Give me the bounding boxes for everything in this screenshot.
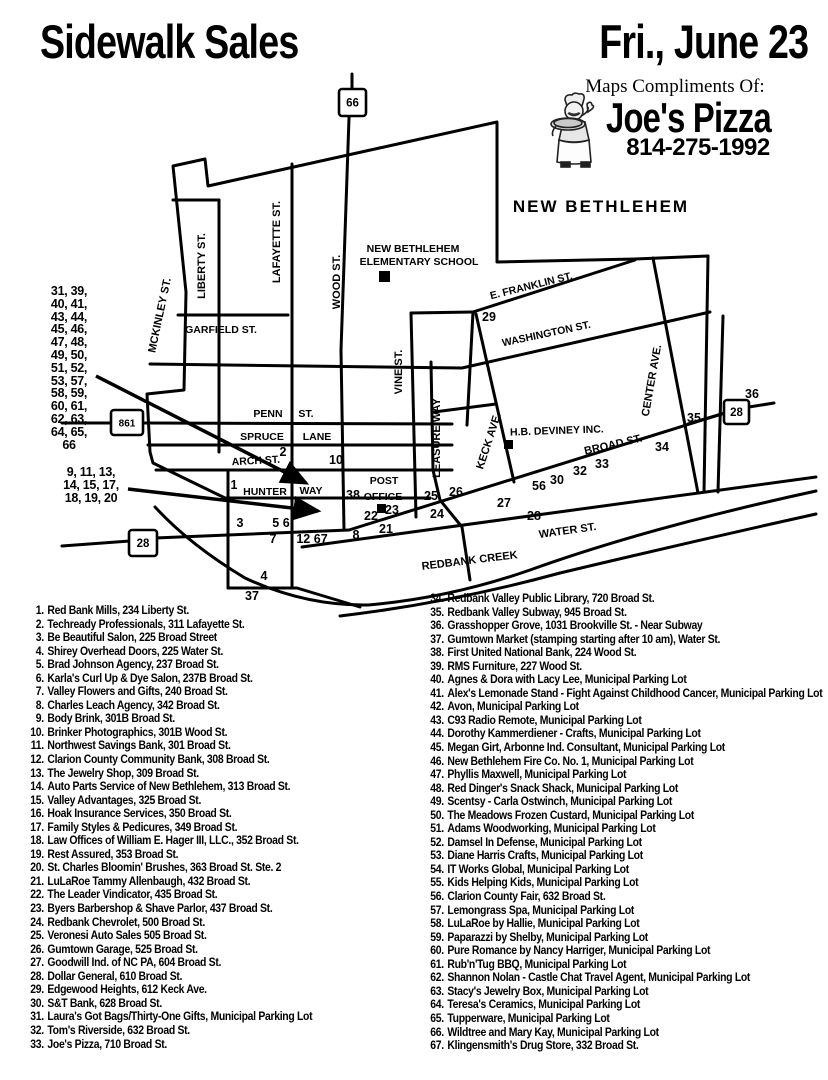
directory-item-text: Red Dinger's Snack Shack, Municipal Park… [447, 782, 678, 795]
directory-item-number: 3. [24, 631, 44, 645]
map-number-35: 35 [687, 411, 701, 425]
street-label: CENTER AVE. [640, 344, 664, 418]
directory-item: 27.Goodwill Ind. of NC PA, 604 Broad St. [24, 956, 388, 970]
directory-item-text: The Leader Vindicator, 435 Broad St. [47, 888, 217, 901]
map-number-21: 21 [379, 522, 393, 536]
directory-item: 61.Rub'n'Tug BBQ, Municipal Parking Lot [424, 958, 788, 972]
directory-item-text: Red Bank Mills, 234 Liberty St. [47, 604, 189, 617]
street-lines [62, 74, 816, 616]
street-label: ARCH ST. [231, 454, 280, 469]
directory-item: 8.Charles Leach Agency, 342 Broad St. [24, 699, 388, 713]
directory-item-number: 38. [424, 646, 444, 660]
directory-item: 30.S&T Bank, 628 Broad St. [24, 997, 388, 1011]
directory-item: 23.Byers Barbershop & Shave Parlor, 437 … [24, 902, 388, 916]
map-number-38: 38 [346, 488, 360, 502]
map-number-1: 1 [231, 478, 238, 492]
directory-item-text: Tom's Riverside, 632 Broad St. [47, 1024, 189, 1037]
map-number-25: 25 [424, 489, 438, 503]
directory-item: 29.Edgewood Heights, 612 Keck Ave. [24, 983, 388, 997]
directory-item-text: Charles Leach Agency, 342 Broad St. [47, 699, 219, 712]
directory-item-text: Rest Assured, 353 Broad St. [47, 848, 178, 861]
directory-item-number: 46. [424, 755, 444, 769]
directory-item-text: Dorothy Kammerdiener - Crafts, Municipal… [447, 727, 700, 740]
directory-item: 41.Alex's Lemonade Stand - Fight Against… [424, 687, 788, 701]
directory-item-number: 5. [24, 658, 44, 672]
parking-lot-number-cluster: 31, 39,40, 41,43, 44,45, 46,47, 48,49, 5… [36, 285, 102, 451]
directory-item-number: 17. [24, 821, 44, 835]
directory-item: 37.Gumtown Market (stamping starting aft… [424, 633, 788, 647]
directory-item-number: 35. [424, 606, 444, 620]
map-number-8: 8 [353, 528, 360, 542]
directory-item-text: Avon, Municipal Parking Lot [447, 700, 578, 713]
directory-item-number: 50. [424, 809, 444, 823]
directory-item: 35.Redbank Valley Subway, 945 Broad St. [424, 606, 788, 620]
directory-item-number: 6. [24, 672, 44, 686]
street-label: WASHINGTON ST. [501, 319, 592, 350]
directory-item-number: 1. [24, 604, 44, 618]
directory-item-number: 41. [424, 687, 444, 701]
directory-item-text: Valley Flowers and Gifts, 240 Broad St. [47, 685, 227, 698]
directory-item: 26.Gumtown Garage, 525 Broad St. [24, 943, 388, 957]
directory-item-number: 62. [424, 971, 444, 985]
directory-item: 31.Laura's Got Bags/Thirty-One Gifts, Mu… [24, 1010, 388, 1024]
directory-item-number: 40. [424, 673, 444, 687]
directory-item-number: 51. [424, 822, 444, 836]
directory-item: 53.Diane Harris Crafts, Municipal Parkin… [424, 849, 788, 863]
directory-item: 55.Kids Helping Kids, Municipal Parking … [424, 876, 788, 890]
directory-item: 58.LuLaRoe by Hallie, Municipal Parking … [424, 917, 788, 931]
cluster-line: 51, 52, [36, 362, 102, 375]
street-label: WATER ST. [538, 521, 597, 541]
map-number-26: 26 [449, 485, 463, 499]
right-boundary-1 [704, 256, 708, 492]
street-label: NEW BETHLEHEM [367, 243, 460, 255]
directory-item-text: Diane Harris Crafts, Municipal Parking L… [447, 849, 643, 862]
directory-item: 18.Law Offices of William E. Hager III, … [24, 834, 388, 848]
street-label: LEASURE WAY [431, 398, 443, 478]
map-number-28: 28 [527, 509, 541, 523]
directory-item-text: Gumtown Market (stamping starting after … [447, 633, 720, 646]
directory-item-number: 42. [424, 700, 444, 714]
directory-item-text: Phyllis Maxwell, Municipal Parking Lot [447, 768, 626, 781]
directory-item-text: Alex's Lemonade Stand - Fight Against Ch… [447, 687, 822, 700]
map-number-32: 32 [573, 464, 587, 478]
directory-item-text: Stacy's Jewelry Box, Municipal Parking L… [447, 985, 648, 998]
directory-item-number: 24. [24, 916, 44, 930]
directory-item-text: Auto Parts Service of New Bethlehem, 313… [47, 780, 290, 793]
directory-item-number: 21. [24, 875, 44, 889]
school-marker [379, 271, 390, 282]
directory-item-number: 63. [424, 985, 444, 999]
map-number-30: 30 [550, 473, 564, 487]
cluster-line: 66 [36, 439, 102, 452]
directory-item: 10.Brinker Photographics, 301B Wood St. [24, 726, 388, 740]
street-label: KECK AVE. [474, 411, 504, 471]
street-label: LANE [303, 431, 332, 443]
directory-item-number: 59. [424, 931, 444, 945]
directory-item: 59.Paparazzi by Shelby, Municipal Parkin… [424, 931, 788, 945]
directory-item-number: 49. [424, 795, 444, 809]
street-label: ST. [298, 408, 313, 420]
directory-item-number: 44. [424, 727, 444, 741]
directory-item-text: Lemongrass Spa, Municipal Parking Lot [447, 904, 634, 917]
directory-item-text: Klingensmith's Drug Store, 332 Broad St. [447, 1039, 638, 1052]
town-map: 668612828 MCKINLEY ST.LIBERTY ST.LAFAYET… [0, 0, 828, 630]
directory-item-text: Kids Helping Kids, Municipal Parking Lot [447, 876, 638, 889]
directory-item-number: 13. [24, 767, 44, 781]
directory-item-number: 27. [24, 956, 44, 970]
directory-item-text: C93 Radio Remote, Municipal Parking Lot [447, 714, 641, 727]
map-number-37: 37 [245, 589, 259, 603]
directory-item-number: 60. [424, 944, 444, 958]
directory-item-number: 55. [424, 876, 444, 890]
directory-item-text: Northwest Savings Bank, 301 Broad St. [47, 739, 230, 752]
directory-item-number: 58. [424, 917, 444, 931]
directory-item-number: 29. [24, 983, 44, 997]
directory-item: 3.Be Beautiful Salon, 225 Broad Street [24, 631, 388, 645]
directory-item: 21.LuLaRoe Tammy Allenbaugh, 432 Broad S… [24, 875, 388, 889]
directory-item-number: 9. [24, 712, 44, 726]
street-label: HUNTER [243, 486, 287, 498]
directory-item: 14.Auto Parts Service of New Bethlehem, … [24, 780, 388, 794]
svg-text:28: 28 [730, 407, 743, 419]
map-number-27: 27 [497, 496, 511, 510]
directory-item-number: 23. [24, 902, 44, 916]
directory-item-text: Redbank Valley Public Library, 720 Broad… [447, 592, 654, 605]
map-number-34: 34 [655, 440, 669, 454]
map-number-33: 33 [595, 457, 609, 471]
directory-item: 44.Dorothy Kammerdiener - Crafts, Munici… [424, 727, 788, 741]
svg-text:861: 861 [119, 419, 136, 430]
directory-item-text: Megan Girt, Arbonne Ind. Consultant, Mun… [447, 741, 725, 754]
directory-item-text: New Bethlehem Fire Co. No. 1, Municipal … [447, 755, 693, 768]
directory-item-text: Brad Johnson Agency, 237 Broad St. [47, 658, 218, 671]
directory-item-text: LuLaRoe Tammy Allenbaugh, 432 Broad St. [47, 875, 250, 888]
directory-item: 34.Redbank Valley Public Library, 720 Br… [424, 592, 788, 606]
map-number-12-67: 12 67 [296, 532, 327, 546]
street-label: POST [370, 475, 399, 487]
directory-item-text: IT Works Global, Municipal Parking Lot [447, 863, 628, 876]
directory-item: 33.Joe's Pizza, 710 Broad St. [24, 1038, 388, 1052]
directory-item-text: Karla's Curl Up & Dye Salon, 237B Broad … [47, 672, 252, 685]
directory-item-number: 45. [424, 741, 444, 755]
directory-item-text: Shannon Nolan - Castle Chat Travel Agent… [447, 971, 750, 984]
directory-item-text: Rub'n'Tug BBQ, Municipal Parking Lot [447, 958, 626, 971]
directory-item: 64.Teresa's Ceramics, Municipal Parking … [424, 998, 788, 1012]
cluster-line: 62, 63, [36, 413, 102, 426]
street-label: WOOD ST. [331, 255, 343, 309]
shield28r-stub-right [749, 403, 774, 407]
directory-item-number: 61. [424, 958, 444, 972]
street-label: WAY [300, 485, 323, 497]
directory-item-text: S&T Bank, 628 Broad St. [47, 997, 162, 1010]
directory-item-number: 31. [24, 1010, 44, 1024]
directory-item-number: 39. [424, 660, 444, 674]
map-number-2: 2 [280, 445, 287, 459]
directory-item-number: 36. [424, 619, 444, 633]
route-shield-66: 66 [339, 89, 366, 116]
street-label: GARFIELD ST. [185, 324, 257, 336]
directory-item-number: 54. [424, 863, 444, 877]
street-label: SPRUCE [240, 431, 284, 443]
directory-item-text: First United National Bank, 224 Wood St. [447, 646, 636, 659]
directory-item: 28.Dollar General, 610 Broad St. [24, 970, 388, 984]
directory-item: 57.Lemongrass Spa, Municipal Parking Lot [424, 904, 788, 918]
penn-ext [434, 404, 496, 412]
directory-item: 47.Phyllis Maxwell, Municipal Parking Lo… [424, 768, 788, 782]
directory-item: 6.Karla's Curl Up & Dye Salon, 237B Broa… [24, 672, 388, 686]
directory-item-number: 52. [424, 836, 444, 850]
directory-item: 4.Shirey Overhead Doors, 225 Water St. [24, 645, 388, 659]
directory-item: 38.First United National Bank, 224 Wood … [424, 646, 788, 660]
directory-item-number: 22. [24, 888, 44, 902]
directory-item-text: Brinker Photographics, 301B Wood St. [47, 726, 227, 739]
directory-item-number: 16. [24, 807, 44, 821]
directory-item-number: 56. [424, 890, 444, 904]
map-number-56: 56 [532, 479, 546, 493]
route-shield-28: 28 [724, 400, 749, 424]
directory-item: 7.Valley Flowers and Gifts, 240 Broad St… [24, 685, 388, 699]
directory-item: 43.C93 Radio Remote, Municipal Parking L… [424, 714, 788, 728]
directory-item-text: Laura's Got Bags/Thirty-One Gifts, Munic… [47, 1010, 312, 1023]
directory-item-text: Edgewood Heights, 612 Keck Ave. [47, 983, 206, 996]
directory-item-number: 47. [424, 768, 444, 782]
directory-item-number: 64. [424, 998, 444, 1012]
directory-item-number: 18. [24, 834, 44, 848]
directory-item: 17.Family Styles & Pedicures, 349 Broad … [24, 821, 388, 835]
directory-item-text: Grasshopper Grove, 1031 Brookville St. -… [447, 619, 702, 632]
map-number-3: 3 [237, 516, 244, 530]
directory-item-text: Redbank Chevrolet, 500 Broad St. [47, 916, 205, 929]
map-number-23: 23 [385, 503, 399, 517]
directory-item-text: Shirey Overhead Doors, 225 Water St. [47, 645, 223, 658]
school-block-line [411, 312, 473, 313]
center-ave-line [653, 258, 698, 493]
directory-item-text: Goodwill Ind. of NC PA, 604 Broad St. [47, 956, 221, 969]
directory-item-text: LuLaRoe by Hallie, Municipal Parking Lot [447, 917, 639, 930]
directory-item: 19.Rest Assured, 353 Broad St. [24, 848, 388, 862]
directory-item: 16.Hoak Insurance Services, 350 Broad St… [24, 807, 388, 821]
directory-item-text: Body Brink, 301B Broad St. [47, 712, 174, 725]
directory-item-number: 28. [24, 970, 44, 984]
directory-item-number: 48. [424, 782, 444, 796]
map-number-7: 7 [270, 532, 277, 546]
directory-item: 46.New Bethlehem Fire Co. No. 1, Municip… [424, 755, 788, 769]
street-label: ELEMENTARY SCHOOL [360, 256, 479, 268]
directory-item-text: Scentsy - Carla Ostwinch, Municipal Park… [447, 795, 672, 808]
cluster-line: 14, 15, 17, [56, 479, 126, 492]
directory-item-text: Gumtown Garage, 525 Broad St. [47, 943, 197, 956]
directory-item: 20.St. Charles Bloomin' Brushes, 363 Bro… [24, 861, 388, 875]
svg-text:66: 66 [346, 98, 359, 110]
directory-item: 13.The Jewelry Shop, 309 Broad St. [24, 767, 388, 781]
directory-item: 49.Scentsy - Carla Ostwinch, Municipal P… [424, 795, 788, 809]
cluster-line: 9, 11, 13, [56, 466, 126, 479]
directory-item-number: 57. [424, 904, 444, 918]
directory-item-text: Be Beautiful Salon, 225 Broad Street [47, 631, 217, 644]
directory-item-number: 7. [24, 685, 44, 699]
directory-item-number: 53. [424, 849, 444, 863]
directory-item: 63.Stacy's Jewelry Box, Municipal Parkin… [424, 985, 788, 999]
directory-item-text: Agnes & Dora with Lacy Lee, Municipal Pa… [447, 673, 686, 686]
directory-item-text: Techready Professionals, 311 Lafayette S… [47, 618, 244, 631]
directory-item-text: Law Offices of William E. Hager III, LLC… [47, 834, 298, 847]
broad-st-number-cluster: 9, 11, 13,14, 15, 17,18, 19, 20 [56, 466, 126, 504]
directory-item-text: Clarion County Community Bank, 308 Broad… [47, 753, 269, 766]
route-shield-28: 28 [129, 530, 157, 556]
directory-item-text: Valley Advantages, 325 Broad St. [47, 794, 201, 807]
directory-item: 39.RMS Furniture, 227 Wood St. [424, 660, 788, 674]
directory-item-number: 37. [424, 633, 444, 647]
directory-item-number: 14. [24, 780, 44, 794]
directory-item-number: 30. [24, 997, 44, 1011]
directory-item: 24.Redbank Chevrolet, 500 Broad St. [24, 916, 388, 930]
directory-item: 32.Tom's Riverside, 632 Broad St. [24, 1024, 388, 1038]
directory-item: 9.Body Brink, 301B Broad St. [24, 712, 388, 726]
directory-item-text: Adams Woodworking, Municipal Parking Lot [447, 822, 655, 835]
directory-item: 22.The Leader Vindicator, 435 Broad St. [24, 888, 388, 902]
street-label: H.B. DEVINEY INC. [510, 423, 604, 438]
directory-item-text: Paparazzi by Shelby, Municipal Parking L… [447, 931, 648, 944]
directory-item: 66.Wildtree and Mary Kay, Municipal Park… [424, 1026, 788, 1040]
directory-item-text: Dollar General, 610 Broad St. [47, 970, 182, 983]
directory-item: 25.Veronesi Auto Sales 505 Broad St. [24, 929, 388, 943]
directory-item-number: 34. [424, 592, 444, 606]
directory-item-text: The Meadows Frozen Custard, Municipal Pa… [447, 809, 694, 822]
cluster-line: 49, 50, [36, 349, 102, 362]
directory-item: 45.Megan Girt, Arbonne Ind. Consultant, … [424, 741, 788, 755]
directory-item-number: 25. [24, 929, 44, 943]
street-label: MCKINLEY ST. [146, 277, 174, 354]
deviney-marker [504, 440, 513, 449]
directory-item-number: 65. [424, 1012, 444, 1026]
directory-item-text: Teresa's Ceramics, Municipal Parking Lot [447, 998, 640, 1011]
map-number-10: 10 [329, 453, 343, 467]
directory-item-text: Joe's Pizza, 710 Broad St. [47, 1038, 167, 1051]
route-shield-861: 861 [111, 410, 143, 435]
cluster-line: 40, 41, [36, 298, 102, 311]
flyer-page: Sidewalk Sales Fri., June 23 Maps Compli… [0, 0, 828, 1080]
map-number-29: 29 [482, 310, 496, 324]
cluster-line: 31, 39, [36, 285, 102, 298]
directory-column-left: 1.Red Bank Mills, 234 Liberty St.2.Techr… [24, 604, 388, 1051]
directory-item-text: Veronesi Auto Sales 505 Broad St. [47, 929, 206, 942]
directory-item-number: 26. [24, 943, 44, 957]
cluster-line: 64, 65, [36, 426, 102, 439]
street-label: VINE ST. [393, 350, 405, 395]
directory-item: 2.Techready Professionals, 311 Lafayette… [24, 618, 388, 632]
directory-item-number: 4. [24, 645, 44, 659]
directory-item: 52.Damsel In Defense, Municipal Parking … [424, 836, 788, 850]
street-label: PENN [253, 408, 282, 420]
directory-item-number: 12. [24, 753, 44, 767]
map-number-5-6: 5 6 [272, 516, 289, 530]
directory-item: 65.Tupperware, Municipal Parking Lot [424, 1012, 788, 1026]
directory-item: 42.Avon, Municipal Parking Lot [424, 700, 788, 714]
directory-item-text: Tupperware, Municipal Parking Lot [447, 1012, 609, 1025]
map-number-4: 4 [261, 569, 268, 583]
directory-item-number: 19. [24, 848, 44, 862]
directory-item-text: Redbank Valley Subway, 945 Broad St. [447, 606, 626, 619]
directory-item-number: 43. [424, 714, 444, 728]
street-label: LIBERTY ST. [196, 233, 208, 299]
right-boundary-2 [718, 316, 723, 492]
directory-item: 56.Clarion County Fair, 632 Broad St. [424, 890, 788, 904]
directory-item-text: St. Charles Bloomin' Brushes, 363 Broad … [47, 861, 281, 874]
cluster-line: 18, 19, 20 [56, 492, 126, 505]
directory-item: 60.Pure Romance by Nancy Harriger, Munic… [424, 944, 788, 958]
directory-item-text: Pure Romance by Nancy Harriger, Municipa… [447, 944, 710, 957]
street-label: BROAD ST. [583, 433, 643, 458]
street-label: OFFICE [364, 491, 403, 503]
map-number-22: 22 [364, 509, 378, 523]
street-label: LAFAYETTE ST. [271, 201, 283, 283]
directory-item: 48.Red Dinger's Snack Shack, Municipal P… [424, 782, 788, 796]
directory-item-number: 66. [424, 1026, 444, 1040]
directory-item: 50.The Meadows Frozen Custard, Municipal… [424, 809, 788, 823]
directory-item-number: 67. [424, 1039, 444, 1053]
directory-item-text: The Jewelry Shop, 309 Broad St. [47, 767, 198, 780]
directory-item-number: 33. [24, 1038, 44, 1052]
directory-item-text: RMS Furniture, 227 Wood St. [447, 660, 582, 673]
vine-st-line [411, 313, 416, 517]
directory-item-number: 10. [24, 726, 44, 740]
town-name-label: NEW BETHLEHEM [513, 197, 689, 216]
directory-item-number: 32. [24, 1024, 44, 1038]
directory-item: 15.Valley Advantages, 325 Broad St. [24, 794, 388, 808]
street-label: E. FRANKLIN ST. [489, 270, 574, 302]
directory-item-text: Hoak Insurance Services, 350 Broad St. [47, 807, 231, 820]
street-labels: MCKINLEY ST.LIBERTY ST.LAFAYETTE ST.WOOD… [146, 201, 664, 573]
directory-item: 51.Adams Woodworking, Municipal Parking … [424, 822, 788, 836]
directory-item-text: Byers Barbershop & Shave Parlor, 437 Bro… [47, 902, 272, 915]
directory-item-number: 11. [24, 739, 44, 753]
directory-item-text: Family Styles & Pedicures, 349 Broad St. [47, 821, 237, 834]
directory-item: 11.Northwest Savings Bank, 301 Broad St. [24, 739, 388, 753]
route-shields: 668612828 [111, 89, 749, 556]
directory-item-text: Damsel In Defense, Municipal Parking Lot [447, 836, 641, 849]
directory-item-text: Clarion County Fair, 632 Broad St. [447, 890, 605, 903]
directory-item: 1.Red Bank Mills, 234 Liberty St. [24, 604, 388, 618]
map-number-36: 36 [745, 387, 759, 401]
directory-item: 62.Shannon Nolan - Castle Chat Travel Ag… [424, 971, 788, 985]
directory-item-number: 15. [24, 794, 44, 808]
directory-column-right: 34.Redbank Valley Public Library, 720 Br… [424, 592, 788, 1053]
directory-item-number: 20. [24, 861, 44, 875]
svg-text:28: 28 [137, 538, 150, 550]
washington-line [150, 312, 710, 368]
directory-item: 67.Klingensmith's Drug Store, 332 Broad … [424, 1039, 788, 1053]
directory-item: 5.Brad Johnson Agency, 237 Broad St. [24, 658, 388, 672]
directory-item-text: Wildtree and Mary Kay, Municipal Parking… [447, 1026, 658, 1039]
directory-item-number: 8. [24, 699, 44, 713]
directory-item: 54.IT Works Global, Municipal Parking Lo… [424, 863, 788, 877]
directory-item: 40.Agnes & Dora with Lacy Lee, Municipal… [424, 673, 788, 687]
directory-item: 36.Grasshopper Grove, 1031 Brookville St… [424, 619, 788, 633]
directory-item: 12.Clarion County Community Bank, 308 Br… [24, 753, 388, 767]
directory-item-number: 2. [24, 618, 44, 632]
map-number-24: 24 [430, 507, 444, 521]
